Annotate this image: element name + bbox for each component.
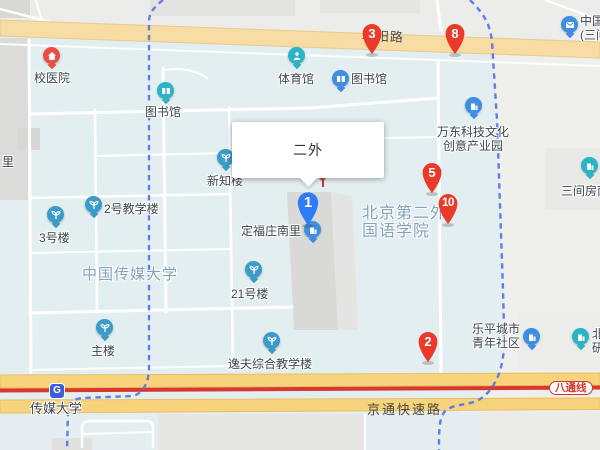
area-label-bisu-line2: 国语学院 (362, 223, 447, 241)
post-label-line1: 中国 (580, 14, 600, 28)
map-canvas[interactable]: 朝阳路 京通快速路 八通线 中国传媒大学 北京第二外 国语学院 里 北 研 校医… (0, 0, 600, 450)
wandong-label-line2: 创意产业园 (425, 139, 521, 153)
wandong-pin[interactable] (465, 97, 482, 120)
sprout-icon (267, 336, 277, 346)
area-label-bisu: 北京第二外 国语学院 (362, 205, 447, 241)
jingtong-road-label: 京通快速路 (367, 399, 442, 418)
leping-label[interactable]: 乐平城市 青年社区 (472, 322, 520, 350)
marker-8-number: 8 (443, 25, 467, 42)
dingfuzhuang-label[interactable]: 定福庄南里 (241, 224, 301, 238)
leping-label-line1: 乐平城市 (472, 322, 520, 336)
main-building-pin[interactable] (96, 319, 113, 342)
leping-pin[interactable] (523, 328, 540, 351)
batong-line-badge: 八通线 (549, 381, 593, 395)
south-gray-block-right (480, 412, 600, 450)
sprout-icon (221, 153, 231, 163)
marker-1[interactable]: 1 (295, 190, 321, 226)
library-right-label[interactable]: 图书馆 (351, 72, 387, 86)
area-label-cuc: 中国传媒大学 (82, 266, 178, 284)
marker-3-number: 3 (360, 25, 384, 42)
building-icon (469, 101, 479, 111)
partial-right-line2: 研 (592, 341, 600, 355)
marker-5[interactable]: 5 (420, 161, 444, 194)
gym-pin[interactable] (288, 47, 305, 70)
building2-pin[interactable] (85, 196, 102, 219)
building-icon (585, 161, 595, 171)
library-left-pin[interactable] (157, 82, 174, 105)
sanjianfang-pin[interactable] (581, 157, 598, 180)
area-label-bisu-line1: 北京第二外 (362, 205, 447, 223)
sprout-icon (51, 210, 61, 220)
building-icon (527, 332, 537, 342)
infowindow[interactable]: 二外 (232, 122, 384, 178)
marker-5-number: 5 (420, 164, 444, 181)
marker-10-number: 10 (436, 195, 460, 212)
main-building-label[interactable]: 主楼 (91, 344, 115, 358)
hospital-label[interactable]: 校医院 (34, 71, 70, 85)
wandong-label[interactable]: 万东科技文化 创意产业园 (425, 125, 521, 153)
partial-right-pin[interactable] (572, 328, 589, 351)
building3-label[interactable]: 3号楼 (39, 231, 70, 245)
sports-icon (292, 51, 302, 61)
library-right-pin[interactable] (332, 70, 349, 93)
sprout-icon (89, 200, 99, 210)
wandong-label-line1: 万东科技文化 (425, 125, 521, 139)
post-pin[interactable] (561, 16, 578, 39)
marker-3[interactable]: 3 (360, 22, 384, 55)
marker-1-number: 1 (295, 194, 321, 212)
envelope-icon (565, 20, 575, 30)
post-label[interactable]: 中国 (三间 (580, 14, 600, 42)
yifu-building-pin[interactable] (263, 332, 280, 355)
home-icon (47, 51, 57, 61)
marker-10[interactable]: 10 (436, 192, 460, 225)
building2-label[interactable]: 2号教学楼 (104, 202, 159, 216)
building21-pin[interactable] (245, 261, 262, 284)
partial-right-line1: 北 (592, 327, 600, 341)
building3-pin[interactable] (47, 206, 64, 229)
library-left-label[interactable]: 图书馆 (145, 105, 181, 119)
subway-station-icon[interactable]: G (49, 383, 65, 399)
building-icon (576, 332, 586, 342)
building21-label[interactable]: 21号楼 (231, 287, 268, 301)
book-icon (161, 86, 171, 96)
sprout-icon (249, 265, 259, 275)
south-gray-block (158, 414, 365, 450)
partial-label-left: 里 (2, 155, 14, 169)
infowindow-title: 二外 (293, 140, 323, 160)
book-icon (336, 74, 346, 84)
gym-label[interactable]: 体育馆 (278, 72, 314, 86)
subway-station-label[interactable]: 传媒大学 (30, 402, 82, 416)
yifu-building-label[interactable]: 逸夫综合教学楼 (228, 357, 312, 371)
sanjianfang-label[interactable]: 三间房南 (561, 184, 600, 198)
marker-8[interactable]: 8 (443, 22, 467, 55)
marker-2-number: 2 (416, 333, 440, 350)
post-label-line2: (三间 (580, 28, 600, 42)
south-gray-block-small (52, 438, 92, 450)
partial-label-right: 北 研 (592, 327, 600, 355)
sprout-icon (100, 323, 110, 333)
marker-2[interactable]: 2 (416, 330, 440, 363)
leping-label-line2: 青年社区 (472, 336, 520, 350)
hospital-pin[interactable] (43, 47, 60, 70)
